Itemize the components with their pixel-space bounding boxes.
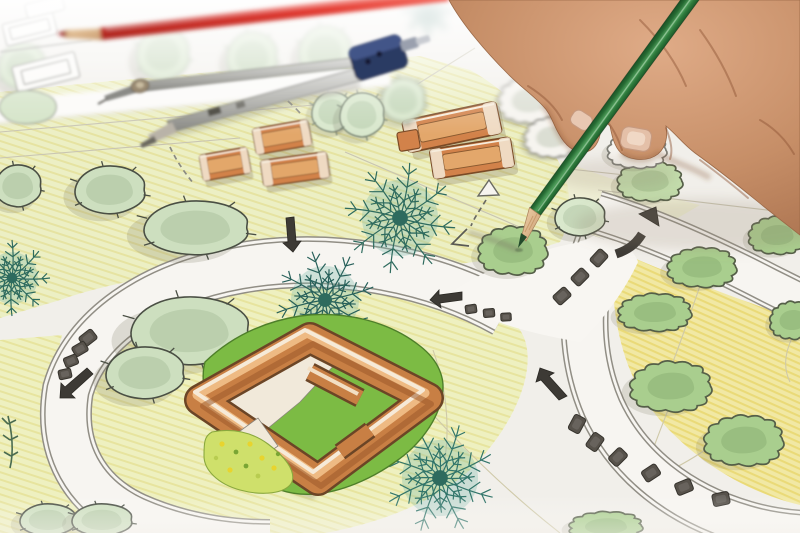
scene-svg: Hand of a landscape architect drawing a …: [0, 0, 800, 533]
index-finger-nail: [619, 126, 652, 153]
bottom-blur: [0, 495, 800, 533]
photo-canvas: Hand of a landscape architect drawing a …: [0, 0, 800, 533]
